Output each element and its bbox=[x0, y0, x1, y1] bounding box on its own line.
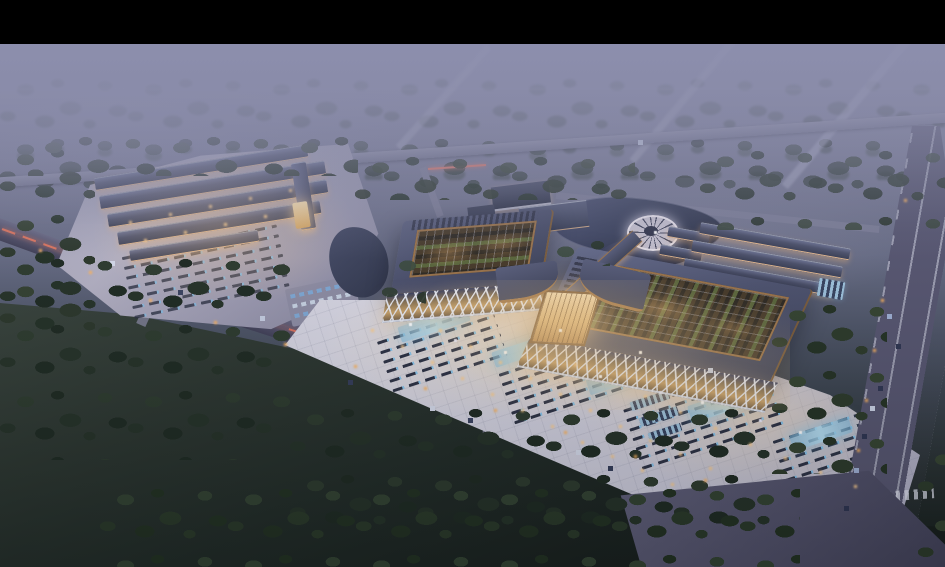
tree-cluster bbox=[355, 148, 635, 200]
tree-cluster bbox=[0, 250, 290, 460]
aerial-rendering-scene: Night-time bird's-eye rendering: two lar… bbox=[0, 0, 945, 567]
wheel-hub bbox=[644, 226, 658, 236]
tree-cluster bbox=[918, 440, 945, 567]
tree-cluster bbox=[28, 128, 358, 176]
distant-road bbox=[0, 88, 945, 90]
tree-cluster bbox=[382, 246, 426, 308]
tree-cluster bbox=[100, 480, 800, 567]
tree-cluster bbox=[700, 142, 945, 230]
tree-cluster bbox=[540, 232, 610, 266]
letterbox-bar bbox=[0, 0, 945, 44]
tree-cluster bbox=[772, 296, 887, 474]
